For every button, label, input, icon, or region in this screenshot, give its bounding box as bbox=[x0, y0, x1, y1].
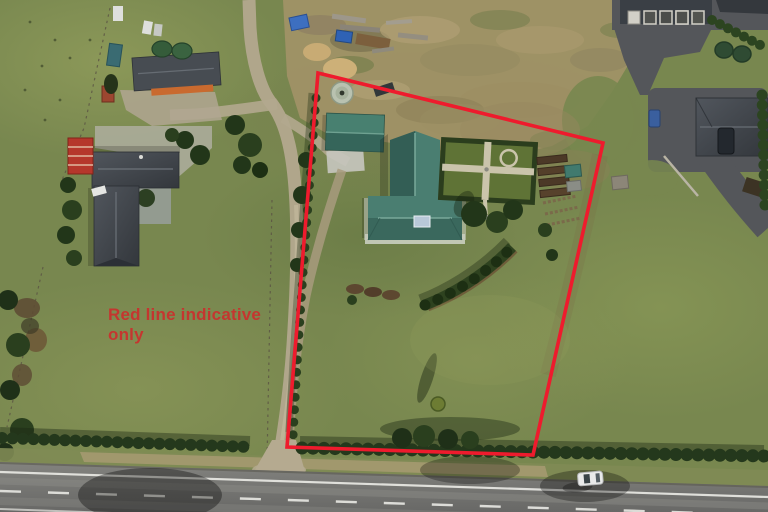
patio-tree bbox=[137, 189, 155, 207]
parked-car-blue bbox=[649, 110, 660, 127]
garage-bays bbox=[628, 11, 704, 24]
neighbor-house-roof bbox=[88, 146, 180, 266]
green-tank bbox=[152, 41, 172, 57]
farm-shed bbox=[132, 52, 222, 97]
chimney bbox=[139, 155, 143, 159]
terrain-layer bbox=[0, 0, 768, 512]
roadside-hedgerow bbox=[0, 417, 764, 456]
small-structure bbox=[611, 175, 628, 190]
white-vehicle bbox=[142, 20, 153, 34]
teal-boat bbox=[107, 43, 123, 67]
parked-car-dark bbox=[718, 128, 734, 154]
mini-shed-teal bbox=[564, 164, 581, 178]
sand-mound-2 bbox=[323, 58, 357, 80]
annotation-text: Red line indicative only bbox=[108, 305, 298, 345]
left-neighbor-property bbox=[57, 6, 268, 266]
water-tank-neighbor-2 bbox=[733, 46, 751, 62]
paddock-dots bbox=[24, 21, 92, 122]
shed-yard bbox=[120, 90, 222, 126]
hedge-column bbox=[762, 95, 765, 205]
corner-roof bbox=[716, 0, 768, 14]
green-tank-2 bbox=[172, 43, 192, 59]
white-vehicle-2 bbox=[113, 6, 123, 21]
dark-tree-yard bbox=[104, 74, 118, 94]
orchard-rows bbox=[543, 196, 581, 225]
gray-vehicle bbox=[153, 24, 162, 37]
water-tank-neighbor bbox=[715, 42, 733, 58]
sand-mound bbox=[303, 43, 331, 61]
aerial-photo: Red line indicative only bbox=[0, 0, 768, 512]
concrete-pad bbox=[326, 149, 364, 174]
garage-shed bbox=[321, 113, 384, 153]
skylight bbox=[414, 216, 430, 227]
blue-tarp-2 bbox=[335, 30, 352, 43]
red-shed bbox=[68, 138, 93, 174]
garden-beds-row bbox=[346, 284, 400, 305]
asphalt-driveway bbox=[614, 28, 712, 95]
water-tank bbox=[331, 82, 353, 104]
mini-shed-gray bbox=[567, 180, 582, 191]
